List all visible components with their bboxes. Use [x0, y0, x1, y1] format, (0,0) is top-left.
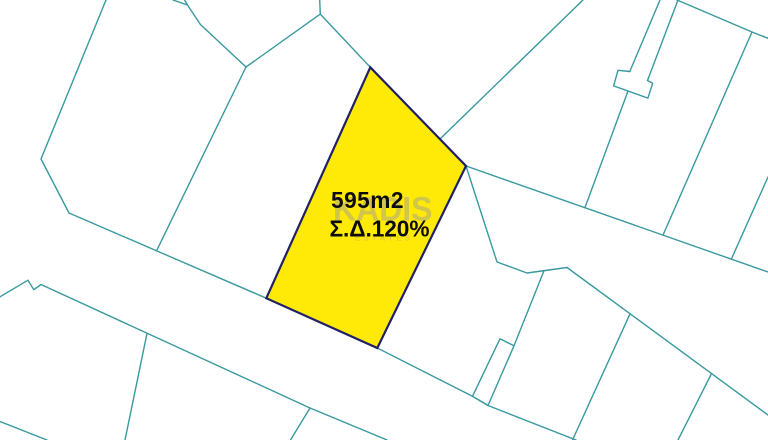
- svg-text:595m2: 595m2: [331, 187, 404, 213]
- svg-text:Σ.Δ.120%: Σ.Δ.120%: [330, 215, 430, 241]
